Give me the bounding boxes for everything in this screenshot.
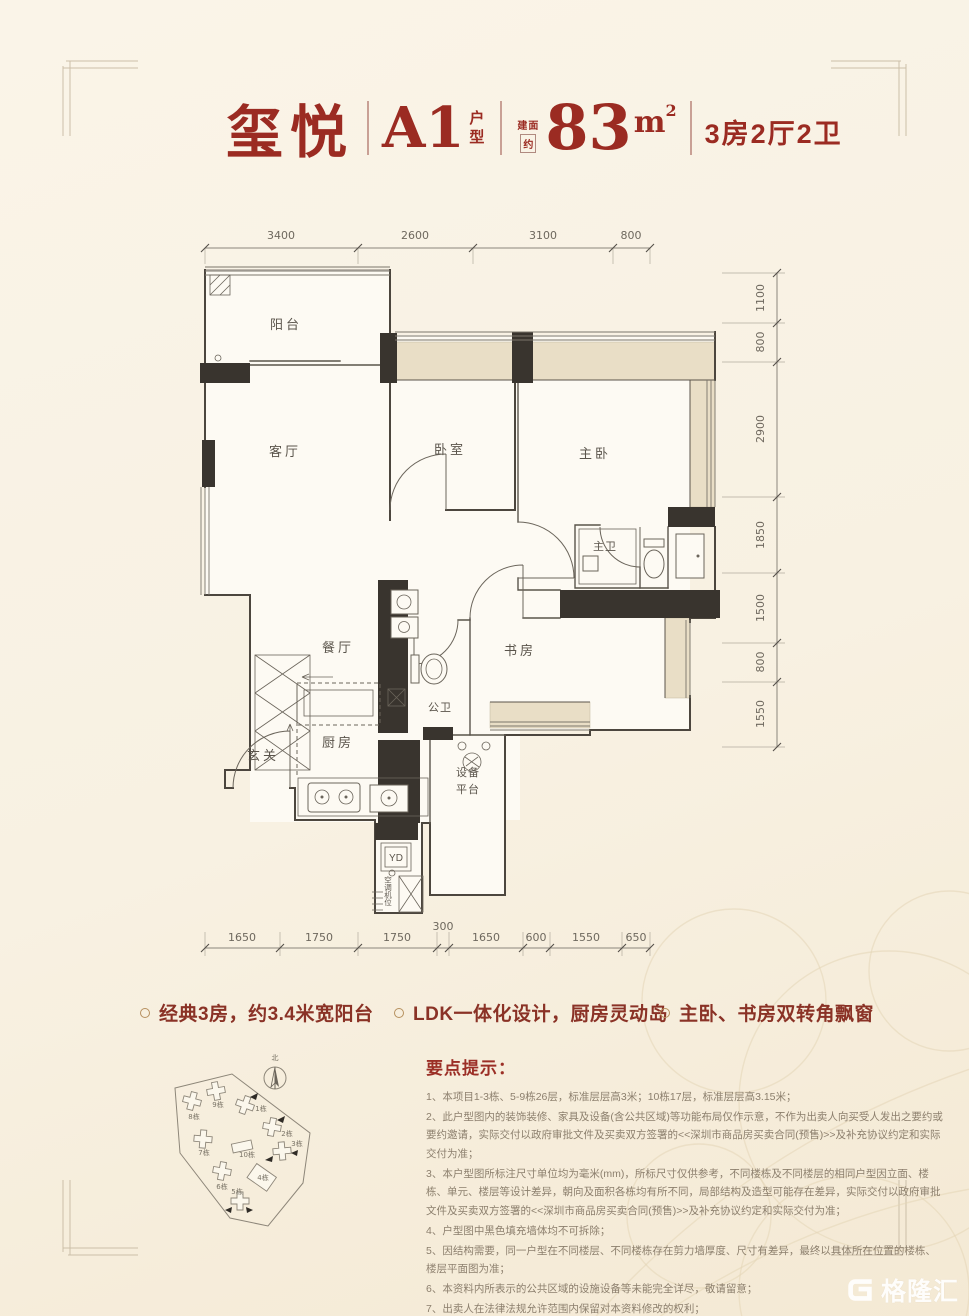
corner-ornament-bottom-left	[28, 1180, 138, 1290]
unit-type: A1 户型	[382, 100, 487, 156]
area-unit: m	[634, 105, 666, 140]
building-label-4: 4栋	[257, 1173, 268, 1182]
notes-title: 要点提示：	[426, 1054, 946, 1079]
room-label-equipment-2: 平台	[456, 782, 480, 796]
dim-right-4: 1850	[754, 521, 767, 549]
room-label-equipment-1: 设备	[456, 765, 480, 779]
dim-top-2: 2600	[401, 229, 429, 242]
note-item: 4、户型图中黑色填充墙体均不可拆除；	[426, 1222, 946, 1241]
dim-top-4: 800	[621, 229, 642, 242]
compass-north-label: 北	[272, 1054, 279, 1062]
label-yd-shaft: YD	[389, 853, 403, 864]
building-label-8: 8栋	[188, 1112, 199, 1121]
gelonghui-logo-icon	[845, 1275, 875, 1305]
room-label-master: 主卧	[579, 446, 611, 461]
note-item: 1、本项目1-3栋、5-9栋26层，标准层层高3米；10栋17层，标准层层高3.…	[426, 1088, 946, 1107]
room-label-bath: 公卫	[428, 702, 452, 714]
dim-top-1: 3400	[267, 229, 295, 242]
corner-ornament-top-left	[28, 26, 138, 136]
feature-item-2: LDK一体化设计，厨房灵动岛	[394, 999, 668, 1026]
area-figure: 83 m 2	[545, 97, 676, 159]
room-label-bedroom: 卧室	[434, 442, 466, 457]
dim-bottom-3: 1750	[383, 931, 411, 944]
siteplan-map: 北 8栋 9栋 1栋 2栋 3栋 7栋 10栋 6栋	[150, 1043, 380, 1253]
note-item: 3、本户型图所标注尺寸单位均为毫米(mm)，所标尺寸仅供参考，不同楼栋及不同楼层…	[426, 1165, 946, 1221]
dim-bottom-7: 1550	[572, 931, 600, 944]
dim-right-7: 1550	[754, 700, 767, 728]
building-label-9: 9栋	[212, 1100, 223, 1109]
building-label-10: 10栋	[239, 1150, 255, 1159]
compass-icon: 北	[264, 1054, 286, 1089]
dim-bottom-4: 300	[433, 920, 454, 933]
project-name: 玺悦	[226, 87, 354, 169]
note-item: 2、此户型图内的装饰装修、家具及设备(含公共区域)等功能布局仅作示意，不作为出卖…	[426, 1108, 946, 1164]
header: 玺悦 A1 户型 建面 约 83 m 2 3房2厅2卫	[226, 86, 843, 170]
bullet-circle-icon	[394, 1008, 404, 1018]
room-label-study: 书房	[504, 643, 536, 658]
dim-right-1: 1100	[754, 284, 767, 312]
area-approx-seal: 约	[520, 134, 536, 153]
building-label-7: 7栋	[198, 1148, 209, 1157]
building-label-1: 1栋	[255, 1104, 266, 1113]
divider	[367, 101, 369, 155]
dim-bottom-2: 1750	[305, 931, 333, 944]
feature-text: 经典3房，约3.4米宽阳台	[159, 999, 373, 1026]
feature-item-3: 主卧、书房双转角飘窗	[660, 999, 874, 1026]
rooms-summary: 3房2厅2卫	[705, 112, 843, 151]
bullet-circle-icon	[140, 1008, 150, 1018]
area-value: 83	[545, 97, 631, 159]
unit-suffix: 户型	[469, 110, 487, 148]
room-label-balcony: 阳台	[270, 317, 302, 332]
area-prefix: 建面	[517, 117, 539, 132]
floorplan-drawing: 阳台 客厅 卧室 主卧 主卫 餐厅 书房 公卫 玄关 厨房 设备 平台 YD 空…	[150, 190, 810, 990]
building-label-5: 5栋	[231, 1187, 242, 1196]
dim-bottom-5: 1650	[472, 931, 500, 944]
dim-right-6: 800	[754, 652, 767, 673]
divider	[500, 101, 502, 155]
feature-item-1: 经典3房，约3.4米宽阳台	[140, 999, 373, 1026]
dim-bottom-6: 600	[526, 931, 547, 944]
room-label-dining: 餐厅	[322, 640, 354, 655]
area-label-seal: 建面 约	[517, 117, 539, 153]
building-label-3: 3栋	[291, 1139, 302, 1148]
feature-text: LDK一体化设计，厨房灵动岛	[413, 999, 668, 1026]
corner-ornament-top-right	[831, 26, 941, 136]
area-exponent: 2	[665, 101, 676, 120]
floorplan-poster: 玺悦 A1 户型 建面 约 83 m 2 3房2厅2卫	[0, 0, 969, 1316]
dim-top-3: 3100	[529, 229, 557, 242]
dim-right-2: 800	[754, 332, 767, 353]
building-label-6: 6栋	[216, 1182, 227, 1191]
divider	[690, 101, 692, 155]
site-buildings: 8栋 9栋 1栋 2栋 3栋 7栋 10栋 6栋 4栋 5栋	[181, 1081, 303, 1213]
brand-watermark: 格隆汇	[845, 1272, 959, 1308]
dim-right-3: 2900	[754, 415, 767, 443]
feature-text: 主卧、书房双转角飘窗	[679, 999, 874, 1026]
room-label-master-bath: 主卫	[593, 540, 617, 553]
dim-right-5: 1500	[754, 594, 767, 622]
dim-bottom-8: 650	[626, 931, 647, 944]
room-label-living: 客厅	[269, 444, 301, 459]
room-label-foyer: 玄关	[247, 748, 279, 763]
room-label-kitchen: 厨房	[322, 735, 354, 750]
building-label-2: 2栋	[281, 1129, 292, 1138]
unit-code: A1	[382, 100, 464, 156]
dim-bottom-1: 1650	[228, 931, 256, 944]
bullet-circle-icon	[660, 1008, 670, 1018]
brand-name: 格隆汇	[881, 1272, 959, 1308]
label-ac-unit: 空调机位	[383, 875, 392, 907]
